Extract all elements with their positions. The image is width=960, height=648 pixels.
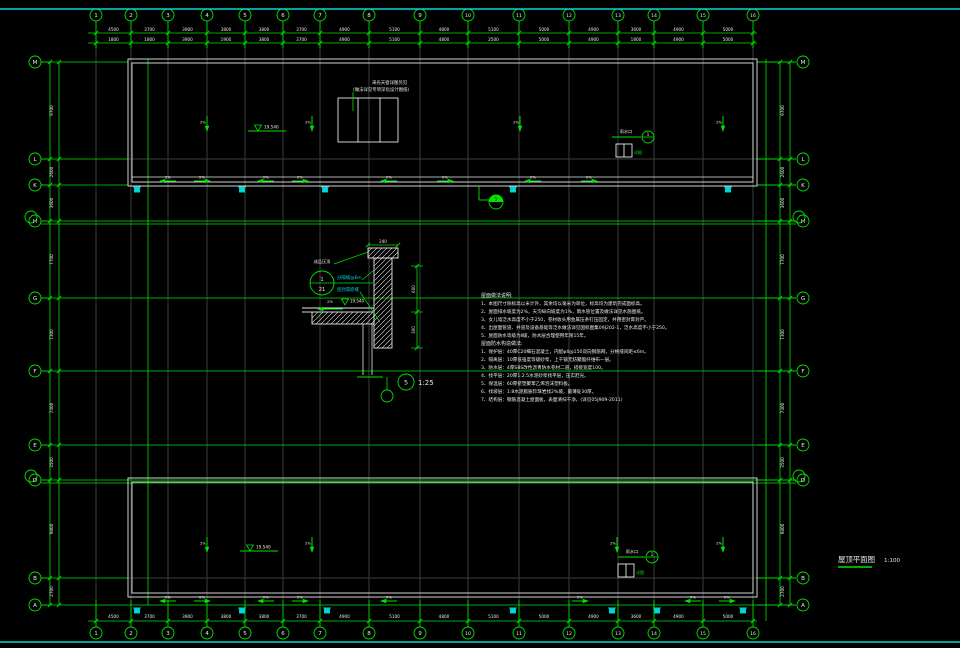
dimension-text: 3600 — [49, 197, 54, 208]
notes-item: 2、隔离层：10厚低强度等级砂浆，上干铺无纺聚酯纤维布一层。 — [481, 356, 614, 363]
notes-item: 1、本图尺寸除标高以米计外，其余均以毫米为单位，标高均为建筑完成面标高。 — [481, 300, 645, 307]
detail-elevation-value: 19.540 — [350, 299, 364, 304]
section-cut-number: 5 — [495, 197, 498, 203]
dimension-text: 7300 — [780, 329, 785, 340]
grid-column-label: 16 — [750, 631, 756, 637]
dimension-text: 3700 — [296, 27, 307, 32]
downspout-mark — [323, 188, 328, 192]
downspout-mark — [610, 609, 615, 613]
grid-column-label: 12 — [566, 13, 572, 19]
roof-drain-bottom-callout-ref: 1 — [651, 552, 654, 557]
grid-row-label: E — [801, 443, 805, 449]
skylight-note-line2: (做法详见专项深化设计图纸) — [353, 86, 409, 93]
downspout-mark — [135, 609, 140, 613]
slope-label: 2% — [263, 175, 269, 180]
dimension-text: 5100 — [488, 614, 499, 619]
detail-cyan-note: 密封膏嵌缝 — [337, 286, 360, 293]
grid-row-label: M — [801, 60, 806, 66]
grid-row-label: A — [33, 603, 37, 609]
fall-label: 2% — [716, 120, 722, 125]
dimension-text: 4900 — [339, 37, 350, 42]
downspout-mark — [240, 188, 245, 192]
dimension-text: 3800 — [259, 37, 270, 42]
detail-dim-text: 300 — [411, 326, 416, 334]
grid-row-label: H — [33, 219, 37, 225]
dimension-text: 4500 — [108, 27, 119, 32]
detail-ref-top: 1 — [320, 277, 323, 283]
dimension-text: 4900 — [339, 27, 350, 32]
notes-item: 1、保护层：40厚C20细石混凝土，内配φ4@150双向钢筋网，分格缝间距≤6m… — [481, 348, 649, 355]
detail-cap-note: 成品压顶 — [314, 258, 332, 265]
slope-arrowhead — [685, 599, 690, 603]
dimension-text: 5100 — [389, 614, 400, 619]
dimension-text: 4800 — [439, 614, 450, 619]
slope-label: 2% — [724, 595, 730, 600]
dimension-text: 5000 — [723, 37, 734, 42]
slope-label: 2% — [442, 175, 448, 180]
detail-elevation-triangle — [342, 299, 349, 305]
fall-label: 2% — [716, 541, 722, 546]
grid-column-label: 8 — [367, 631, 371, 637]
grid-column-label: 12 — [566, 631, 572, 637]
slope-label: 2% — [263, 595, 269, 600]
grid-row-label: D — [33, 478, 37, 484]
dimension-text: 3900 — [182, 37, 193, 42]
slope-label: 2% — [165, 595, 171, 600]
grid-row-label: H — [801, 219, 805, 225]
detail-cyan-note: 分隔缝@6m — [337, 274, 362, 281]
slope-label: 2% — [297, 595, 303, 600]
slope-label: 2% — [199, 175, 205, 180]
dimension-text: 1800 — [631, 37, 642, 42]
grid-column-label: 6 — [281, 13, 285, 19]
dimension-text: 4900 — [673, 27, 684, 32]
dimension-text: 3900 — [182, 614, 193, 619]
dimension-text: 5100 — [488, 27, 499, 32]
detail-empty-circle — [381, 390, 393, 402]
dimension-text: 3700 — [144, 27, 155, 32]
dimension-text: 7400 — [49, 402, 54, 413]
grid-column-label: 3 — [166, 13, 170, 19]
dimension-text: 3900 — [182, 27, 193, 32]
slope-label: 2% — [199, 595, 205, 600]
grid-column-label: 13 — [615, 631, 621, 637]
grid-column-label: 2 — [129, 13, 133, 19]
slope-label: 2% — [297, 175, 303, 180]
grid-column-label: 3 — [166, 631, 170, 637]
dimension-text: 1900 — [221, 37, 232, 42]
roof-drain-top-sub-label: 详图 — [634, 149, 642, 155]
fall-arrowhead — [310, 126, 314, 131]
roof-drain-bottom-label: 雨水口 — [626, 548, 639, 555]
detail-number: 5 — [404, 379, 408, 387]
grid-row-label: B — [801, 576, 805, 582]
fall-arrowhead — [205, 547, 209, 552]
slope-arrowhead — [583, 599, 588, 603]
dimension-text: 7400 — [780, 402, 785, 413]
roof-drain-bottom-sub-label: 详图 — [636, 569, 644, 575]
detail-scale-text: 1:25 — [418, 379, 434, 387]
dimension-text: 9800 — [49, 523, 54, 534]
dimension-text: 4800 — [439, 27, 450, 32]
dimension-text: 3700 — [296, 614, 307, 619]
dimension-text: 1800 — [144, 37, 155, 42]
grid-column-label: 7 — [318, 13, 322, 19]
detail-slab — [312, 312, 374, 324]
grid-column-label: 10 — [465, 13, 471, 19]
grid-row-label: L — [801, 157, 805, 163]
grid-column-label: 1 — [94, 13, 98, 19]
dimension-text: 7300 — [49, 329, 54, 340]
dimension-text: 5100 — [389, 27, 400, 32]
elevation-marker-top-value: 19.540 — [264, 125, 279, 130]
dimension-text: 2600 — [49, 166, 54, 177]
dimension-text: 9700 — [780, 105, 785, 116]
cad-drawing-canvas: 4500370039003800380037004900510048005100… — [0, 0, 960, 648]
fall-label: 2% — [200, 120, 206, 125]
roof-plan-drawing: 4500370039003800380037004900510048005100… — [0, 0, 960, 648]
grid-row-label: K — [33, 183, 37, 189]
notes-header-2: 屋面防水构造做法: — [481, 340, 523, 347]
fall-arrowhead — [721, 547, 725, 552]
grid-row-label: B — [33, 576, 37, 582]
elevation-marker-top-triangle — [255, 125, 262, 131]
building-top-inner-line — [132, 63, 753, 182]
elevation-marker-bottom-value: 19.540 — [256, 545, 271, 550]
grid-column-label: 6 — [281, 631, 285, 637]
fall-label: 2% — [305, 541, 311, 546]
dimension-text: 3800 — [221, 614, 232, 619]
dimension-text: 2600 — [780, 166, 785, 177]
dimension-text: 4900 — [588, 27, 599, 32]
detail-leader-line — [334, 252, 368, 264]
notes-item: 7、结构层：钢筋混凝土屋面板，表面清扫干净。(详见05J909-2011) — [481, 396, 623, 403]
grid-column-label: 2 — [129, 631, 133, 637]
slope-arrowhead — [160, 599, 165, 603]
dimension-text: 5000 — [539, 27, 550, 32]
dimension-text: 3700 — [296, 37, 307, 42]
grid-column-label: 4 — [205, 13, 209, 19]
dimension-text: 5000 — [539, 614, 550, 619]
detail-dim-text: 240 — [379, 239, 387, 244]
dimension-text: 3600 — [631, 614, 642, 619]
detail-wall — [374, 258, 392, 348]
dimension-text: 1800 — [108, 37, 119, 42]
grid-row-label: F — [33, 369, 36, 375]
dimension-text: 4800 — [439, 37, 450, 42]
dimension-text: 3800 — [221, 27, 232, 32]
slope-label: 2% — [386, 175, 392, 180]
dimension-text: 5000 — [723, 614, 734, 619]
detail-cap — [368, 248, 398, 258]
grid-column-label: 8 — [367, 13, 371, 19]
dimension-text: 3500 — [49, 457, 54, 468]
downspout-mark — [741, 609, 746, 613]
slope-arrowhead — [303, 599, 308, 603]
grid-column-label: 7 — [318, 631, 322, 637]
grid-row-label: G — [801, 296, 805, 302]
slope-label: 2% — [165, 175, 171, 180]
dimension-text: 2700 — [49, 586, 54, 597]
fall-label: 2% — [610, 541, 616, 546]
fall-arrowhead — [205, 126, 209, 131]
detail-leader-line — [362, 270, 374, 280]
dimension-text: 3500 — [780, 457, 785, 468]
dimension-text: 4900 — [673, 614, 684, 619]
grid-row-label: A — [801, 603, 805, 609]
slope-label: 2% — [586, 175, 592, 180]
dimension-text: 5100 — [389, 37, 400, 42]
skylight-note-line1: 采光天窗详图另见 — [372, 79, 408, 86]
drawing-title: 屋顶平面图 — [838, 555, 875, 564]
grid-column-label: 9 — [418, 13, 422, 19]
grid-column-label: 9 — [418, 631, 422, 637]
slope-arrowhead — [381, 599, 386, 603]
fall-label: 2% — [305, 120, 311, 125]
notes-item: 4、出屋面管道、井道及设备基础等泛水做法详见国标图集09J202-1，泛水高度不… — [481, 324, 669, 331]
building-bottom-inner-line — [132, 482, 753, 593]
downspout-mark — [511, 188, 516, 192]
slope-label: 2% — [530, 175, 536, 180]
grid-row-label: E — [33, 443, 37, 449]
notes-item: 6、找坡层：1:8水泥膨胀珍珠岩找2%坡，最薄处30厚。 — [481, 388, 596, 395]
slope-label: 2% — [690, 595, 696, 600]
fall-label: 2% — [200, 541, 206, 546]
dimension-text: 3600 — [631, 27, 642, 32]
grid-column-label: 15 — [700, 631, 706, 637]
downspout-mark — [655, 609, 660, 613]
dimension-text: 4900 — [339, 614, 350, 619]
grid-column-label: 15 — [700, 13, 706, 19]
grid-column-label: 5 — [243, 13, 247, 19]
grid-column-label: 11 — [516, 13, 522, 19]
grid-row-label: F — [801, 369, 804, 375]
grid-column-label: 14 — [651, 631, 657, 637]
downspout-mark — [511, 609, 516, 613]
grid-row-label: L — [33, 157, 37, 163]
dimension-text: 3600 — [780, 197, 785, 208]
skylight-box — [338, 98, 398, 142]
dimension-text: 4500 — [108, 614, 119, 619]
dimension-text: 3700 — [144, 614, 155, 619]
notes-item: 2、屋面排水坡度为2%，天沟纵向坡度为1%，雨水管位置及做法详见水施图纸。 — [481, 308, 646, 315]
grid-row-label: M — [33, 60, 38, 66]
fall-arrowhead — [310, 547, 314, 552]
dimension-text: 2500 — [488, 37, 499, 42]
grid-row-label: D — [801, 478, 805, 484]
downspout-mark — [240, 609, 245, 613]
building-bottom-outline — [128, 478, 757, 597]
fall-arrowhead — [721, 126, 725, 131]
detail-ref-bottom: 21 — [319, 287, 326, 293]
detail-slope-label: 2% — [327, 299, 333, 304]
dimension-text: 5000 — [539, 37, 550, 42]
dimension-text: 9700 — [49, 105, 54, 116]
grid-column-label: 10 — [465, 631, 471, 637]
dimension-text: 7700 — [780, 254, 785, 265]
dimension-text: 4900 — [588, 614, 599, 619]
dimension-text: 9800 — [780, 523, 785, 534]
grid-column-label: 4 — [205, 631, 209, 637]
building-top-outline — [128, 59, 757, 186]
grid-column-label: 14 — [651, 13, 657, 19]
grid-row-label: K — [801, 183, 805, 189]
elevation-marker-bottom-triangle — [247, 545, 254, 551]
grid-column-label: 5 — [243, 631, 247, 637]
roof-drain-top-callout-ref: 1 — [647, 132, 650, 137]
grid-column-label: 1 — [94, 631, 98, 637]
downspout-mark — [325, 609, 330, 613]
downspout-mark — [726, 188, 731, 192]
notes-item: 5、保温层：60厚挤塑聚苯乙烯泡沫塑料板。 — [481, 380, 572, 387]
dimension-text: 4900 — [673, 37, 684, 42]
dimension-text: 3800 — [259, 614, 270, 619]
roof-drain-top-label: 雨水口 — [620, 128, 633, 135]
dimension-text: 5000 — [723, 27, 734, 32]
dimension-text: 3800 — [259, 27, 270, 32]
notes-item: 3、防水层：4厚SBS改性沥青防水卷材二道，搭接宽度100。 — [481, 364, 606, 371]
slope-label: 2% — [386, 595, 392, 600]
notes-item: 5、屋面防水等级为Ⅱ级，防水层合理使用年限15年。 — [481, 332, 589, 339]
downspout-mark — [135, 188, 140, 192]
grid-column-label: 16 — [750, 13, 756, 19]
dimension-text: 7700 — [49, 254, 54, 265]
slope-arrowhead — [258, 599, 263, 603]
slope-arrowhead — [730, 599, 735, 603]
detail-dim-text: 600 — [411, 285, 416, 293]
slope-label: 2% — [577, 595, 583, 600]
grid-row-label: G — [33, 296, 37, 302]
notes-item: 4、找平层：20厚1:2.5水泥砂浆找平层，压实赶光。 — [481, 372, 589, 379]
drawing-scale: 1:100 — [884, 558, 901, 564]
notes-item: 3、女儿墙泛水高度不小于250，卷材收头用金属压条钉压固定，并用密封膏封严。 — [481, 316, 649, 323]
dimension-text: 4900 — [588, 37, 599, 42]
grid-column-label: 13 — [615, 13, 621, 19]
grid-column-label: 11 — [516, 631, 522, 637]
notes-header-1: 屋面做法说明: — [481, 292, 513, 299]
fall-label: 2% — [513, 120, 519, 125]
dimension-text: 2700 — [780, 586, 785, 597]
